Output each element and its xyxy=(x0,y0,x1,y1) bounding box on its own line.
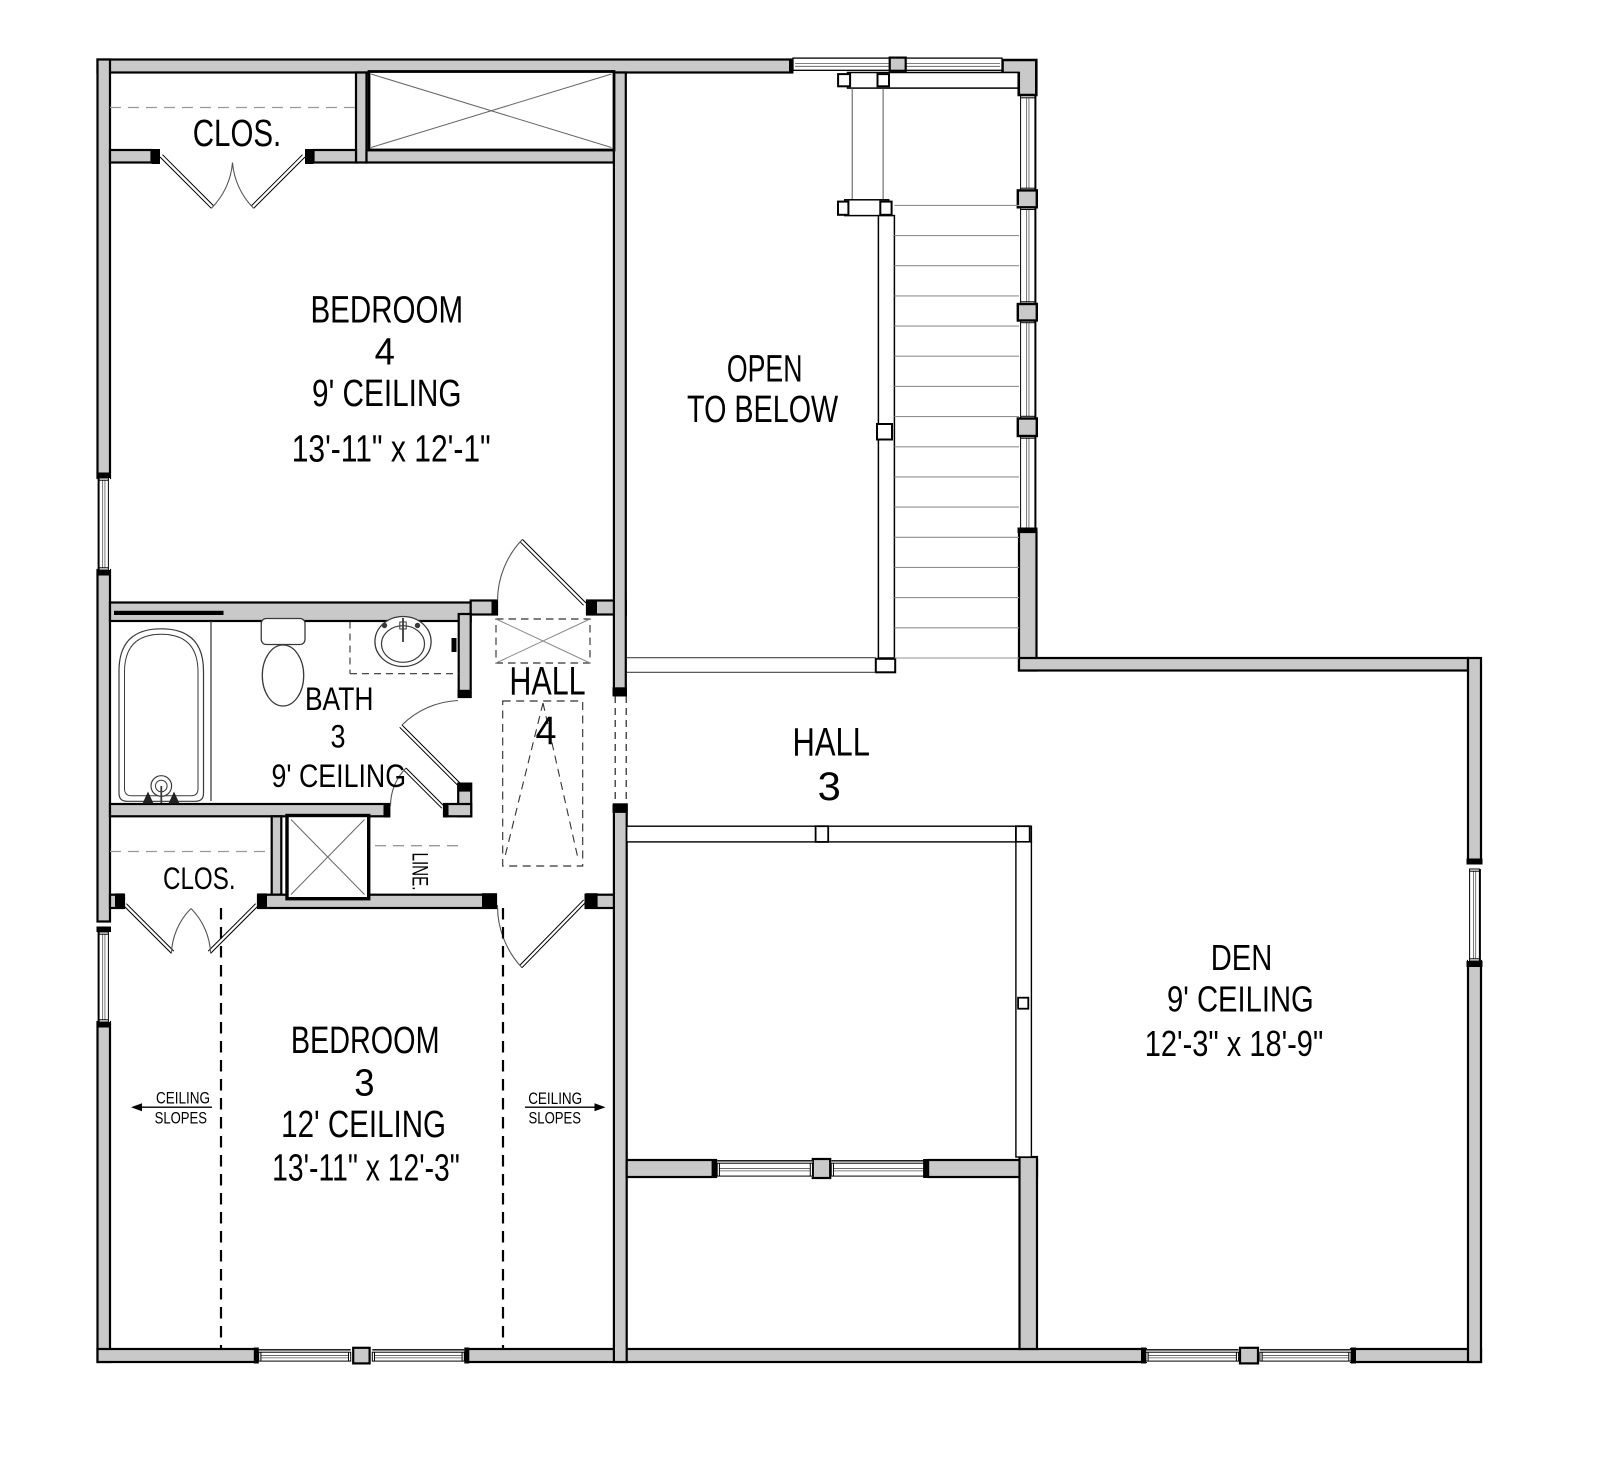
svg-text:BEDROOM: BEDROOM xyxy=(291,1020,440,1062)
svg-text:CLOS.: CLOS. xyxy=(163,860,236,896)
svg-text:3: 3 xyxy=(354,1062,374,1104)
svg-text:HALL: HALL xyxy=(509,659,585,703)
svg-text:13'-11" x 12'-1": 13'-11" x 12'-1" xyxy=(292,429,491,471)
svg-text:9' CEILING: 9' CEILING xyxy=(1167,979,1314,1020)
svg-text:13'-11" x 12'-3": 13'-11" x 12'-3" xyxy=(272,1148,460,1190)
svg-text:DEN: DEN xyxy=(1211,937,1273,978)
svg-text:OPEN: OPEN xyxy=(727,348,803,390)
svg-text:9' CEILING: 9' CEILING xyxy=(312,373,462,415)
svg-text:BATH: BATH xyxy=(305,681,374,717)
svg-text:BEDROOM: BEDROOM xyxy=(310,290,463,332)
svg-text:4: 4 xyxy=(536,709,557,753)
svg-text:4: 4 xyxy=(375,332,395,374)
svg-text:SLOPES: SLOPES xyxy=(155,1109,207,1127)
svg-text:3: 3 xyxy=(818,765,841,809)
svg-text:TO BELOW: TO BELOW xyxy=(687,389,838,431)
svg-text:HALL: HALL xyxy=(792,721,870,765)
svg-text:LINE.: LINE. xyxy=(408,853,433,891)
svg-text:CLOS.: CLOS. xyxy=(193,113,282,155)
svg-text:SLOPES: SLOPES xyxy=(529,1109,582,1127)
svg-text:CEILING: CEILING xyxy=(156,1090,210,1108)
svg-text:12' CEILING: 12' CEILING xyxy=(281,1104,446,1146)
svg-text:CEILING: CEILING xyxy=(528,1090,582,1108)
svg-text:12'-3" x 18'-9": 12'-3" x 18'-9" xyxy=(1145,1023,1324,1064)
svg-text:3: 3 xyxy=(331,719,346,755)
svg-text:9' CEILING: 9' CEILING xyxy=(272,758,407,794)
